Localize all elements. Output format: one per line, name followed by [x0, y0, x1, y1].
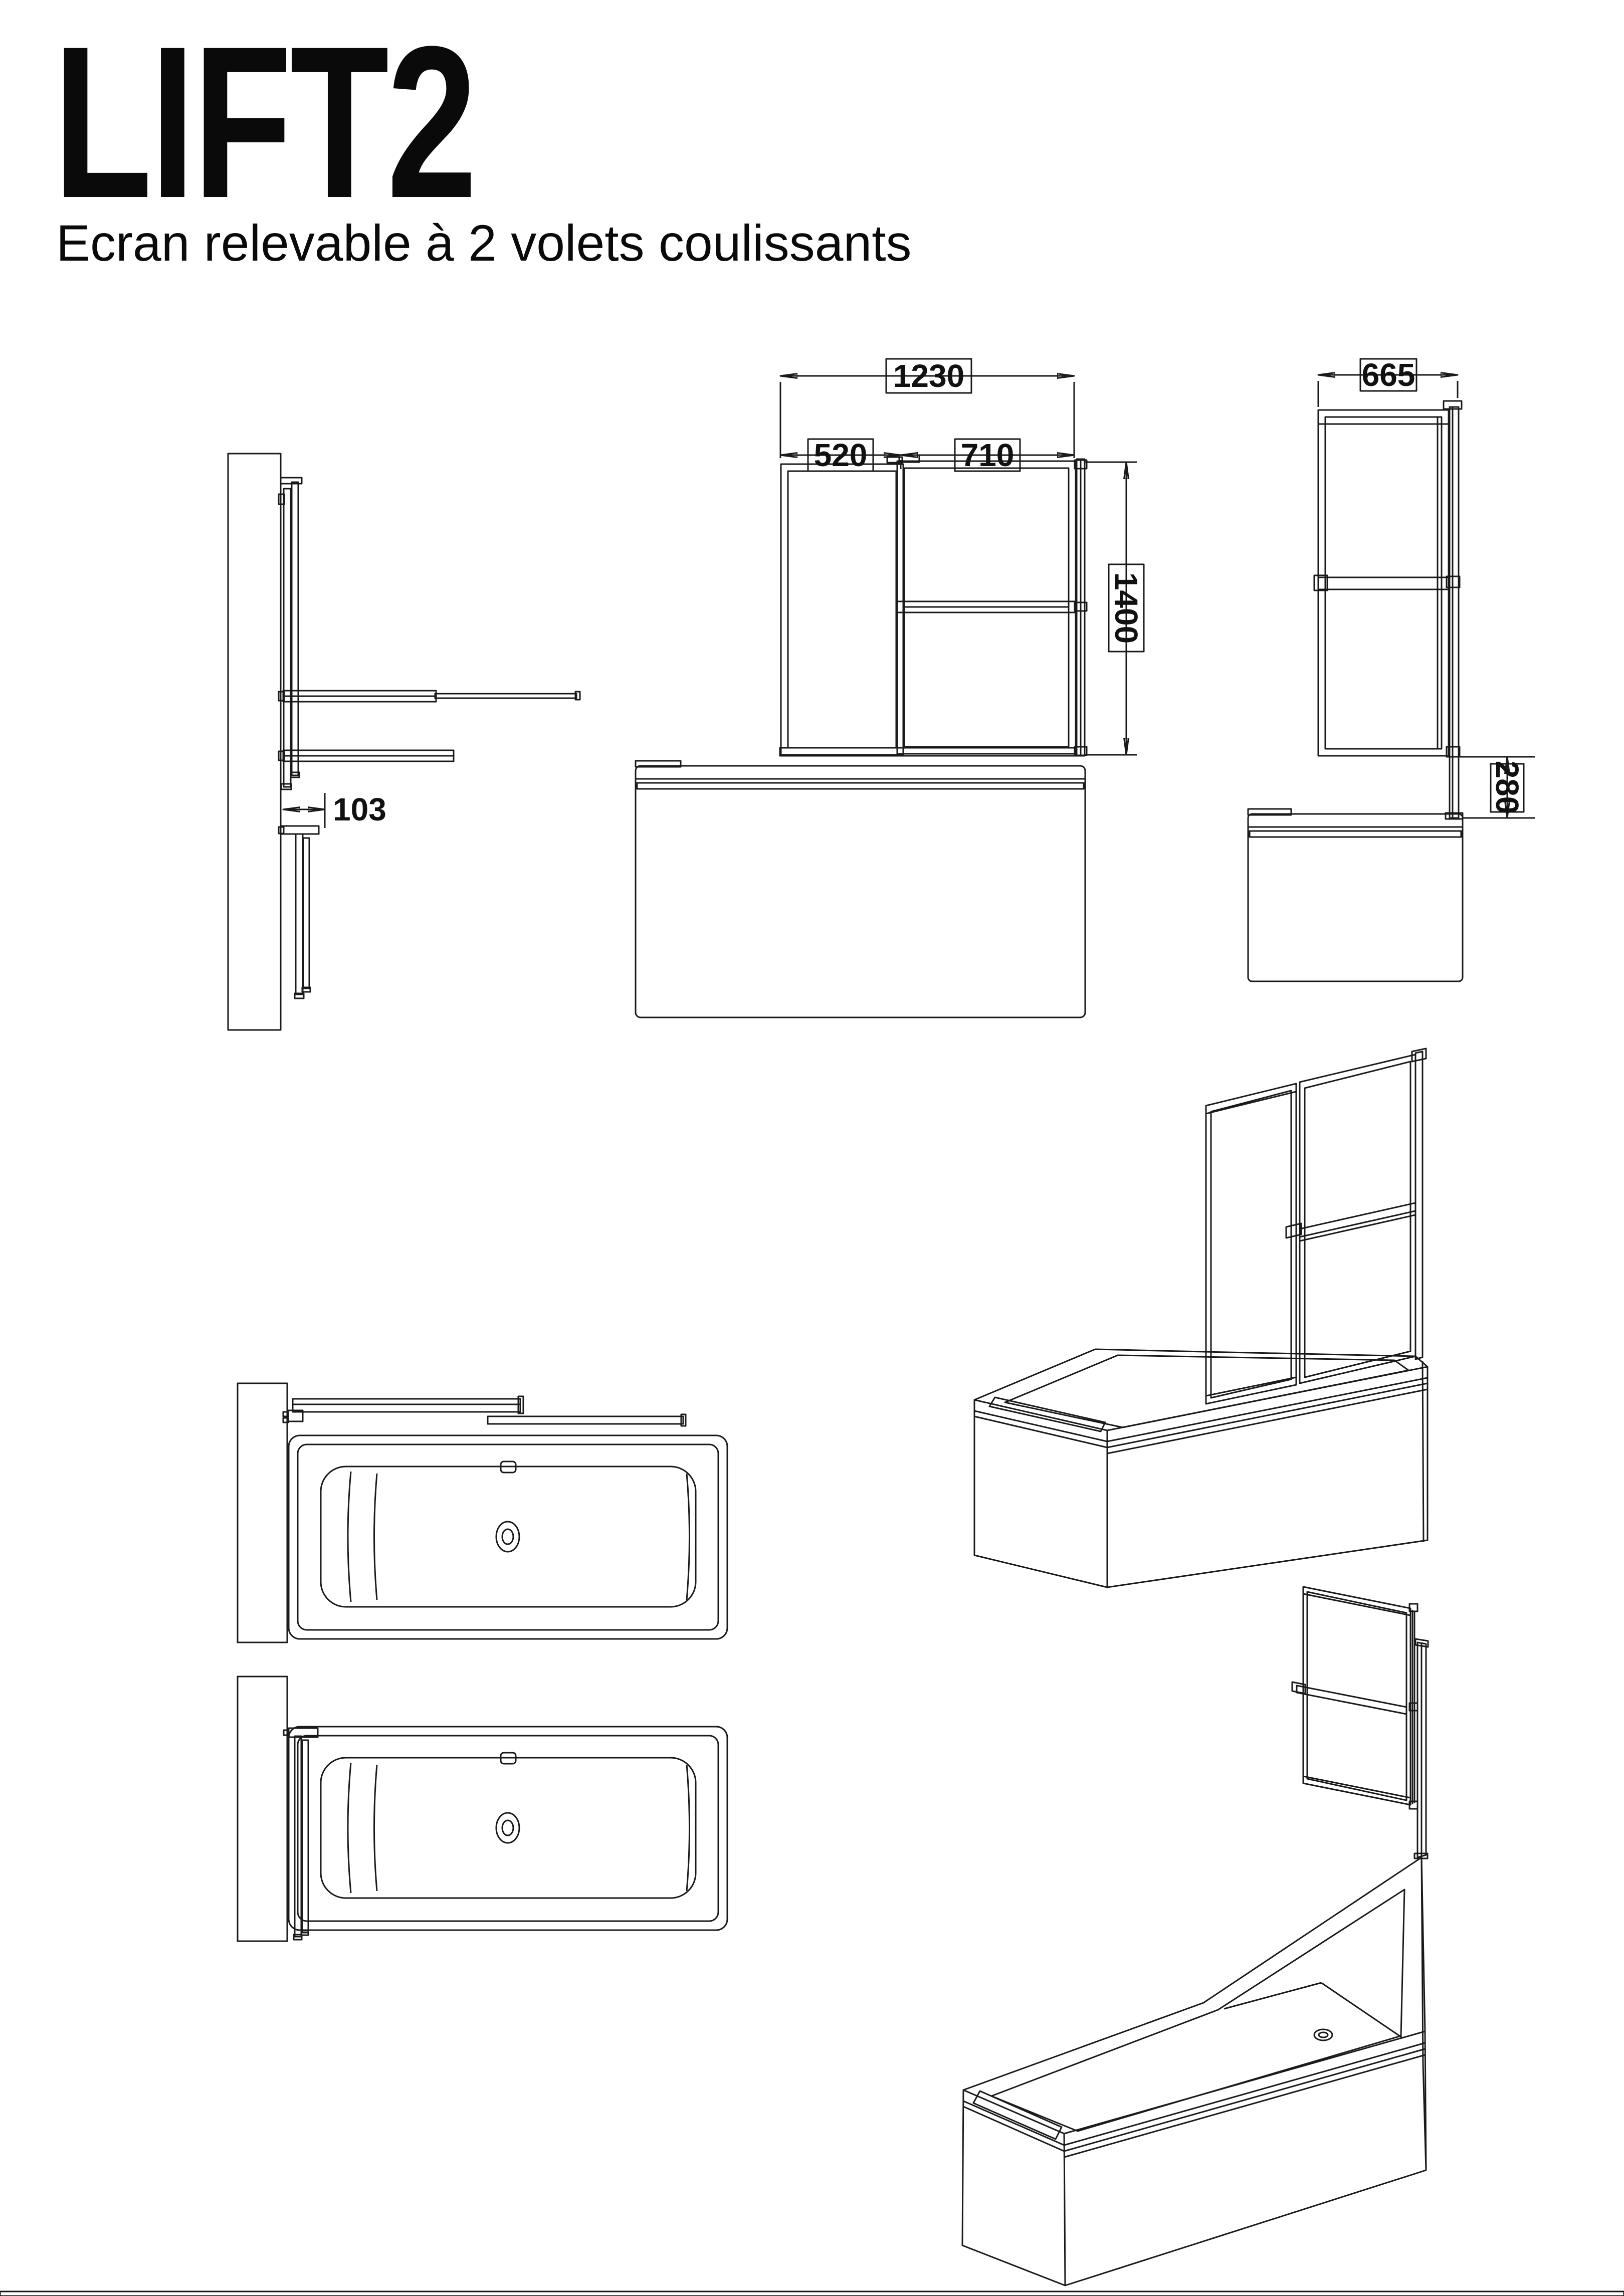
bathtub-3d — [974, 1367, 1428, 1587]
dim-left-panel-label: 520 — [814, 437, 868, 473]
view-side-elevation: 665 280 — [1248, 357, 1535, 981]
view-perspective-screen-raised — [962, 1587, 1428, 2285]
view-side-profile: 103 — [228, 454, 580, 1030]
view-perspective-screen-down — [974, 1049, 1428, 1587]
panel-3d-folded — [1303, 1587, 1410, 1805]
wall-plan-2 — [238, 1677, 287, 1941]
bathtub-side — [1248, 814, 1463, 981]
dim-screen-height-label: 1400 — [1108, 572, 1144, 644]
dim-lift-clearance-label: 280 — [1489, 761, 1525, 814]
datasheet-page: LIFT2 Ecran relevable à 2 volets couliss… — [0, 0, 1624, 2296]
bathtub-front — [636, 766, 1085, 1017]
front-left-panel — [781, 464, 903, 755]
side-panel — [1318, 410, 1449, 756]
wall-plan-1 — [238, 1383, 287, 1642]
view-front-elevation: 1230 520 710 1400 — [636, 358, 1144, 1017]
dim-right-panel-label: 710 — [961, 437, 1014, 473]
wall-profile — [228, 454, 281, 1030]
dim-wall-offset-label: 103 — [333, 791, 386, 827]
technical-drawing: 103 — [0, 0, 1624, 2296]
page-bottom-edge — [0, 2291, 1624, 2296]
view-plan-deployed — [238, 1383, 727, 1642]
bathtub-3d-2 — [962, 2031, 1426, 2285]
dim-screen-depth-label: 665 — [1362, 357, 1415, 393]
panel-3d-left — [1206, 1084, 1296, 1404]
dim-total-width-label: 1230 — [893, 358, 964, 394]
view-plan-folded — [238, 1677, 727, 1941]
